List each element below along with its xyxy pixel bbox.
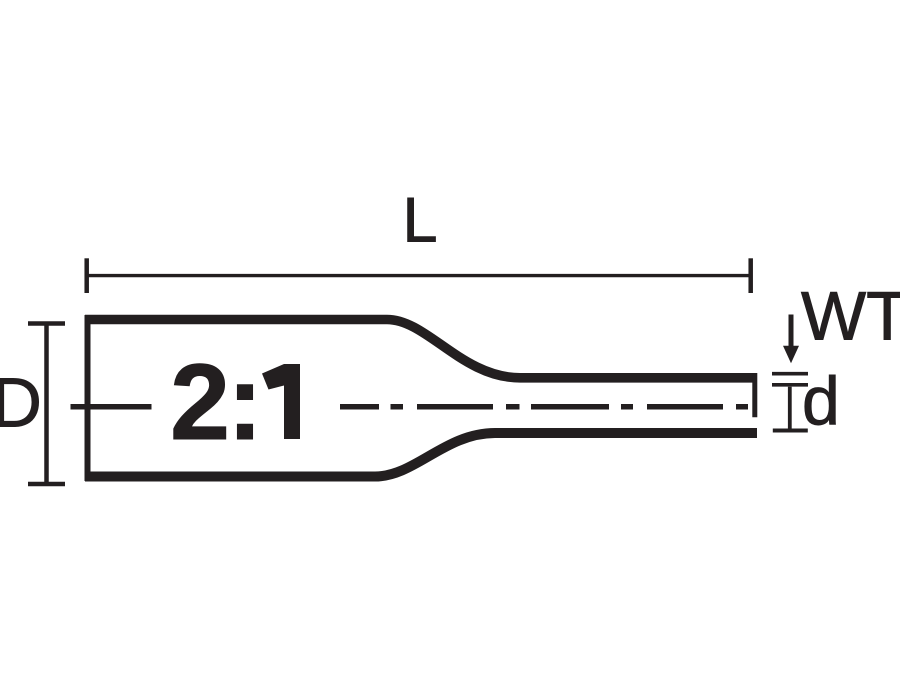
svg-text:2:: 2:	[170, 341, 263, 462]
svg-text:L: L	[403, 186, 438, 256]
svg-text:D: D	[0, 364, 42, 442]
svg-text:d: d	[802, 363, 840, 439]
svg-text:WT: WT	[801, 278, 900, 355]
